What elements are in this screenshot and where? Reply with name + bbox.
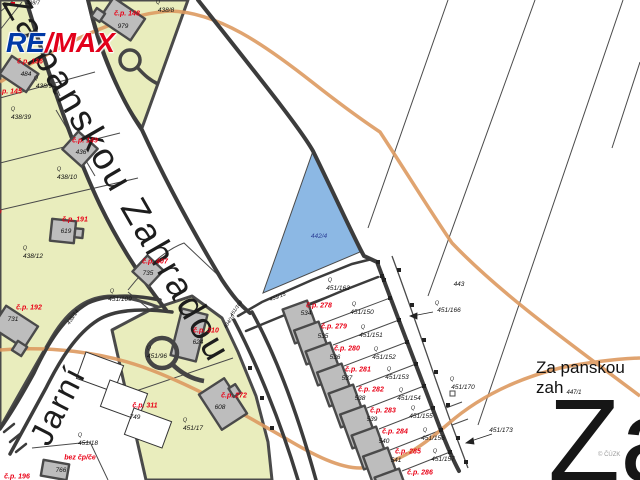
parcel-number-label: 451/173: [489, 428, 513, 435]
parcel-number-label: 451/96: [147, 354, 167, 361]
parcel-number-label: 438/7: [26, 1, 40, 7]
land-use-symbol: Q: [399, 388, 403, 394]
parcel-number-label: 434/10: [224, 314, 237, 329]
land-use-symbol: Q: [110, 289, 114, 295]
building-number-label: 979: [118, 24, 129, 31]
house-number-red-label: č.p. 284: [382, 429, 408, 436]
land-use-symbol: Q: [450, 377, 454, 383]
house-number-red-label: č.p. 149: [72, 138, 98, 145]
house-number-red-label: č.p. 285: [395, 449, 421, 456]
building-number-label: 766: [56, 468, 67, 475]
map-label-layer: 438/7438/8438/9438/39438/10438/12451/109…: [0, 0, 640, 480]
house-number-red-label: č.p. 148: [114, 11, 140, 18]
parcel-number-label: 438/12: [23, 254, 43, 261]
house-number-red-label: č.p. 280: [334, 346, 360, 353]
building-number-label: 539: [367, 417, 378, 424]
parcel-number-label: 438/14: [67, 310, 81, 327]
building-number-label: 749: [130, 415, 141, 422]
land-use-symbol: Q: [352, 302, 356, 308]
land-use-symbol: Q: [387, 367, 391, 373]
parcel-number-label: 451/109: [108, 297, 132, 304]
land-use-symbol: Q: [328, 278, 332, 284]
house-number-red-label: č.p. 145: [0, 89, 22, 96]
land-use-symbol: Q: [57, 167, 61, 173]
remax-logo: RE/MAX: [6, 27, 115, 59]
building-number-label: 624: [193, 340, 204, 347]
parcel-number-label: 451/157: [431, 457, 455, 464]
building-number-label: 484: [21, 72, 32, 79]
building-number-label: 537: [342, 376, 353, 383]
house-number-red-label: č.p. 286: [407, 470, 433, 477]
parcel-number-label: 451/166: [437, 308, 461, 315]
building-number-label: 619: [61, 229, 72, 236]
building-number-label: 735: [143, 271, 154, 278]
house-number-red-label: bez čp/če: [64, 455, 96, 462]
parcel-number-label: 447/1: [566, 390, 581, 396]
parcel-number-label: 438/8: [158, 8, 174, 15]
house-number-red-label: č.p. 191: [62, 217, 88, 224]
house-number-red-label: č.p. 279: [321, 324, 347, 331]
land-use-symbol: Q: [361, 325, 365, 331]
building-number-label: 436: [76, 150, 87, 157]
building-number-label: 535: [318, 334, 329, 341]
land-use-symbol: Q: [147, 346, 151, 352]
house-number-red-label: č.p. 272: [221, 393, 247, 400]
land-use-symbol: Q: [156, 0, 160, 6]
land-use-symbol: Q: [374, 347, 378, 353]
parcel-number-label: 438/9: [36, 84, 52, 91]
building-number-label: 534: [301, 311, 312, 318]
land-use-symbol: Q: [183, 418, 187, 424]
house-number-red-label: č.p. 192: [16, 305, 42, 312]
parcel-number-label: 451/170: [451, 385, 475, 392]
parcel-number-label: 451/156: [421, 436, 445, 443]
land-use-symbol: Q: [411, 406, 415, 412]
parcel-number-label: 451/18: [78, 441, 98, 448]
house-number-red-label: č.p. 311: [132, 403, 157, 410]
parcel-number-label: 443: [454, 282, 465, 289]
parcel-number-label: 451/163: [326, 286, 350, 293]
house-number-red-label: č.p. 196: [4, 474, 30, 480]
house-number-red-label: bez čp/če: [0, 209, 2, 216]
building-number-label: 540: [379, 439, 390, 446]
parcel-number-label: 438/10: [57, 175, 77, 182]
remax-logo-slash-max: /MAX: [45, 27, 115, 58]
parcel-number-label: 451/15: [269, 292, 287, 303]
building-number-label: 731: [8, 317, 19, 324]
house-number-red-label: č.p. 407: [142, 259, 168, 266]
building-number-label: 538: [355, 396, 366, 403]
land-use-symbol: Q: [34, 76, 38, 82]
parcel-number-label: 451/154: [397, 396, 421, 403]
parcel-number-label: 451/155: [409, 414, 433, 421]
parcel-number-label: 451/153: [385, 375, 409, 382]
house-number-red-label: č.p. 278: [306, 303, 332, 310]
land-use-symbol: Q: [23, 246, 27, 252]
land-use-symbol: Q: [433, 449, 437, 455]
parcel-number-label: 451/151: [359, 333, 383, 340]
house-number-red-label: č.p. 136: [17, 59, 43, 66]
building-number-label: 608: [215, 405, 226, 412]
land-use-symbol: Q: [11, 107, 15, 113]
land-use-symbol: Q: [78, 433, 82, 439]
parcel-number-label: 442/4: [311, 234, 327, 241]
land-use-symbol: Q: [435, 301, 439, 307]
house-number-red-label: č.p. 283: [370, 408, 396, 415]
cadastral-map[interactable]: Za panskou Zahradou Jarní Za panskou zah…: [0, 0, 640, 480]
parcel-number-label: 451/17: [183, 426, 203, 433]
house-number-red-label: č.p. 310: [193, 328, 219, 335]
remax-logo-re: RE: [6, 27, 45, 58]
land-use-symbol: Q: [423, 428, 427, 434]
house-number-red-label: č.p. 281: [345, 367, 371, 374]
house-number-red-label: č.p. 282: [358, 387, 384, 394]
parcel-number-label: 451/150: [350, 310, 374, 317]
parcel-number-label: 438/39: [11, 115, 31, 122]
parcel-number-label: 451/152: [372, 355, 396, 362]
building-number-label: 536: [330, 355, 341, 362]
building-number-label: 541: [391, 458, 402, 465]
